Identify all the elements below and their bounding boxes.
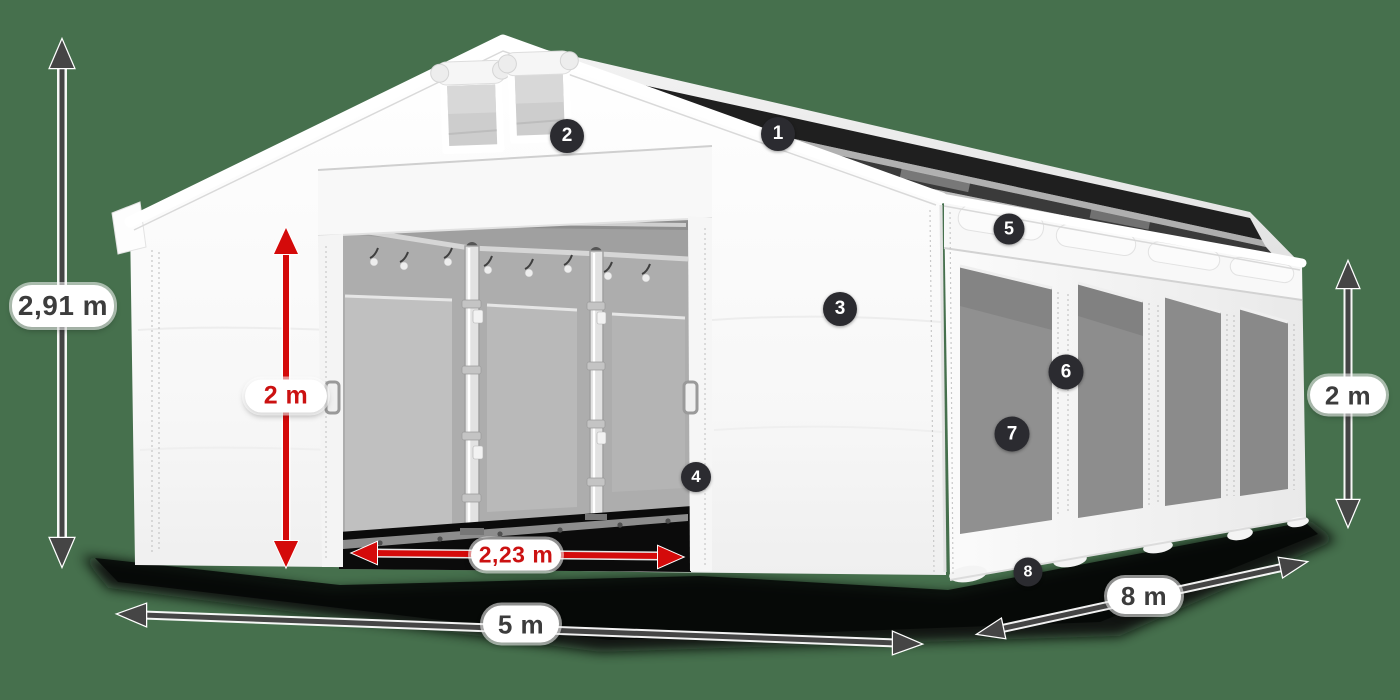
side-wall <box>944 202 1310 585</box>
tent-illustration <box>0 0 1400 700</box>
callout-badge-7: 7 <box>995 417 1030 452</box>
door-interior <box>339 210 692 575</box>
callout-badge-1: 1 <box>761 117 795 151</box>
dimension-label-door-width: 2,23 m <box>471 540 561 571</box>
callout-badge-2: 2 <box>550 119 584 153</box>
callout-badge-3: 3 <box>823 292 857 326</box>
door-handle-left <box>326 382 339 413</box>
dimension-label-wall-height: 2 m <box>1310 377 1386 414</box>
callout-badge-5: 5 <box>994 214 1025 245</box>
tent-dimension-diagram: 2,91 m 2 m 2,23 m 5 m 8 m 2 m 1 2 3 4 5 … <box>0 0 1400 700</box>
callout-badge-4: 4 <box>681 462 711 492</box>
callout-badge-6: 6 <box>1049 355 1084 390</box>
dimension-label-front-width: 5 m <box>483 606 559 643</box>
dimension-label-side-length: 8 m <box>1107 578 1181 614</box>
dimension-label-total-height: 2,91 m <box>12 285 114 327</box>
callout-badge-8: 8 <box>1014 558 1043 587</box>
door-handle-right <box>684 382 697 413</box>
dimension-label-door-height: 2 m <box>245 380 327 413</box>
